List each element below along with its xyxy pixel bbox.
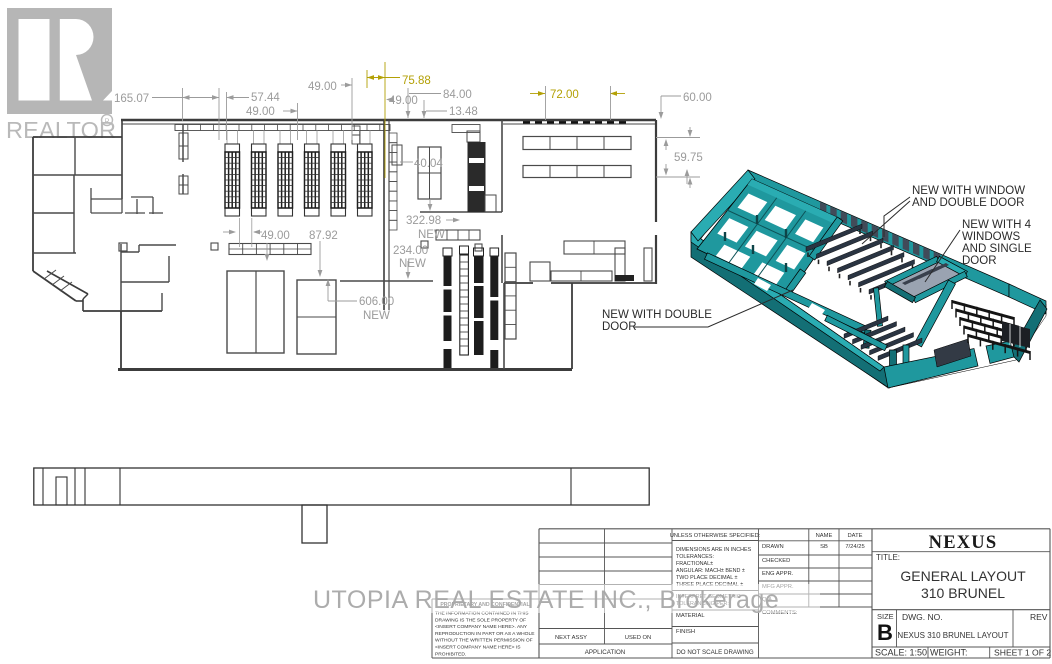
svg-text:FINISH: FINISH bbox=[676, 629, 695, 635]
svg-text:REPRODUCTION IN PART OR AS A W: REPRODUCTION IN PART OR AS A WHOLE bbox=[435, 631, 535, 637]
svg-text:TOLERANCES:: TOLERANCES: bbox=[676, 554, 714, 560]
svg-text:SCALE: 1:50: SCALE: 1:50 bbox=[875, 648, 927, 658]
svg-text:NEW WITH DOUBLE: NEW WITH DOUBLE bbox=[602, 309, 712, 321]
svg-text:40.04: 40.04 bbox=[414, 158, 443, 170]
svg-text:GENERAL LAYOUT: GENERAL LAYOUT bbox=[900, 568, 1026, 584]
svg-text:ANGULAR: MACH± BEND ±: ANGULAR: MACH± BEND ± bbox=[676, 568, 745, 574]
svg-text:DWG. NO.: DWG. NO. bbox=[902, 612, 943, 622]
svg-text:322.98: 322.98 bbox=[406, 215, 441, 227]
svg-text:NEW: NEW bbox=[418, 229, 445, 241]
svg-text:B: B bbox=[877, 620, 893, 645]
svg-text:REV: REV bbox=[1030, 612, 1048, 622]
svg-text:NEW WITH WINDOW: NEW WITH WINDOW bbox=[912, 185, 1025, 197]
svg-text:DRAWN: DRAWN bbox=[762, 544, 784, 550]
svg-text:49.00: 49.00 bbox=[389, 95, 418, 107]
svg-text:DO NOT SCALE DRAWING: DO NOT SCALE DRAWING bbox=[676, 649, 754, 656]
svg-text:75.88: 75.88 bbox=[402, 75, 431, 87]
svg-text:FRACTIONAL±: FRACTIONAL± bbox=[676, 561, 713, 567]
svg-text:R: R bbox=[104, 119, 109, 126]
svg-text:NEW: NEW bbox=[363, 310, 390, 322]
svg-text:7/24/25: 7/24/25 bbox=[845, 544, 864, 550]
svg-text:PROHIBITED.: PROHIBITED. bbox=[435, 651, 466, 657]
svg-text:DOOR: DOOR bbox=[962, 255, 997, 267]
svg-text:165.07: 165.07 bbox=[114, 93, 149, 105]
svg-text:84.00: 84.00 bbox=[443, 89, 472, 101]
svg-text:DIMENSIONS ARE IN INCHES: DIMENSIONS ARE IN INCHES bbox=[676, 547, 752, 553]
svg-text:SB: SB bbox=[820, 544, 828, 550]
svg-text:DRAWING IS THE SOLE PROPERTY O: DRAWING IS THE SOLE PROPERTY OF bbox=[435, 617, 526, 623]
svg-text:<INSERT COMPANY NAME HERE>. A: <INSERT COMPANY NAME HERE>. ANY bbox=[435, 624, 528, 630]
svg-text:59.75: 59.75 bbox=[674, 152, 703, 164]
svg-text:57.44: 57.44 bbox=[251, 92, 280, 104]
svg-text:NEXUS 310 BRUNEL LAYOUT: NEXUS 310 BRUNEL LAYOUT bbox=[897, 631, 1008, 640]
svg-text:13.48: 13.48 bbox=[449, 106, 478, 118]
svg-text:<INSERT COMPANY NAME HERE> IS: <INSERT COMPANY NAME HERE> IS bbox=[435, 645, 521, 651]
svg-text:NEXT ASSY: NEXT ASSY bbox=[555, 635, 587, 641]
svg-text:DATE: DATE bbox=[847, 533, 862, 539]
svg-text:UNLESS OTHERWISE SPECIFIED:: UNLESS OTHERWISE SPECIFIED: bbox=[670, 533, 761, 539]
svg-text:REALTOR: REALTOR bbox=[6, 117, 116, 143]
svg-text:49.00: 49.00 bbox=[261, 230, 290, 242]
svg-text:SHEET 1 OF 2: SHEET 1 OF 2 bbox=[994, 648, 1051, 658]
svg-text:TWO PLACE DECIMAL ±: TWO PLACE DECIMAL ± bbox=[676, 575, 738, 581]
svg-text:NAME: NAME bbox=[816, 533, 833, 539]
svg-text:49.00: 49.00 bbox=[246, 106, 275, 118]
svg-text:WINDOWS: WINDOWS bbox=[962, 231, 1020, 243]
svg-text:NEXUS: NEXUS bbox=[929, 533, 998, 553]
svg-text:TITLE:: TITLE: bbox=[876, 553, 900, 562]
svg-text:NEW: NEW bbox=[399, 258, 426, 270]
svg-text:310 BRUNEL: 310 BRUNEL bbox=[921, 585, 1005, 601]
svg-text:NEW WITH 4: NEW WITH 4 bbox=[962, 219, 1032, 231]
svg-text:UTOPIA REAL ESTATE INC., Brok: UTOPIA REAL ESTATE INC., Brokerage bbox=[313, 586, 779, 614]
svg-text:AND DOUBLE DOOR: AND DOUBLE DOOR bbox=[912, 197, 1024, 209]
svg-text:ENG APPR.: ENG APPR. bbox=[762, 571, 794, 577]
svg-text:AND SINGLE: AND SINGLE bbox=[962, 243, 1032, 255]
svg-text:CHECKED: CHECKED bbox=[762, 558, 790, 564]
svg-text:60.00: 60.00 bbox=[683, 92, 712, 104]
svg-text:WEIGHT:: WEIGHT: bbox=[930, 648, 968, 658]
svg-text:87.92: 87.92 bbox=[309, 230, 338, 242]
svg-text:APPLICATION: APPLICATION bbox=[585, 649, 625, 656]
svg-text:USED ON: USED ON bbox=[625, 635, 651, 641]
svg-text:234.00: 234.00 bbox=[393, 245, 428, 257]
svg-text:49.00: 49.00 bbox=[308, 81, 337, 93]
svg-text:WITHOUT THE WRITTEN PERMISSION: WITHOUT THE WRITTEN PERMISSION OF bbox=[435, 638, 533, 644]
svg-text:DOOR: DOOR bbox=[602, 321, 637, 333]
svg-text:606.00: 606.00 bbox=[359, 296, 394, 308]
svg-text:72.00: 72.00 bbox=[550, 89, 579, 101]
